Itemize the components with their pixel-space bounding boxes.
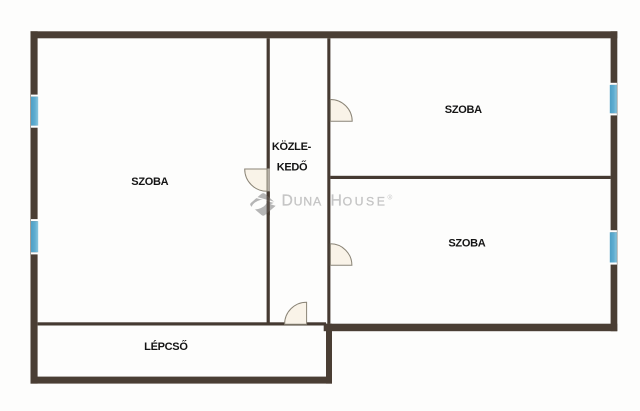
svg-text:KEDŐ: KEDŐ xyxy=(277,161,308,174)
svg-text:DUNA HOUSE®: DUNA HOUSE® xyxy=(282,193,393,210)
svg-text:KÖZLE-: KÖZLE- xyxy=(272,140,312,153)
svg-text:SZOBA: SZOBA xyxy=(445,104,482,116)
svg-text:SZOBA: SZOBA xyxy=(131,176,168,188)
svg-text:LÉPCSŐ: LÉPCSŐ xyxy=(144,340,188,353)
svg-text:SZOBA: SZOBA xyxy=(448,237,485,249)
